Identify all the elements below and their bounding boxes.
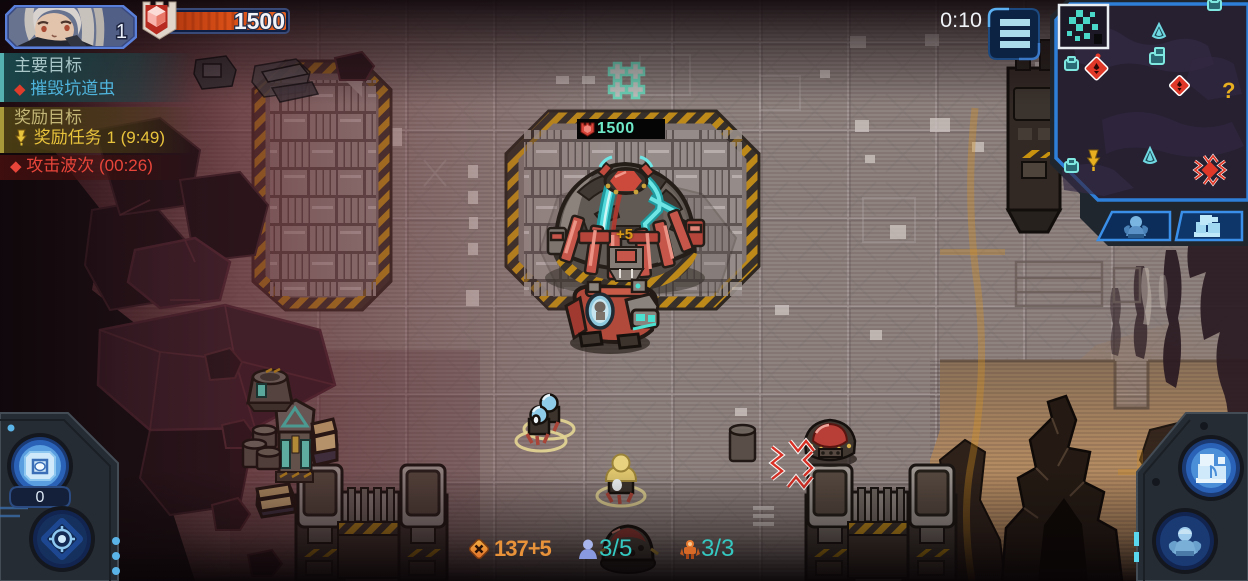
svg-text:?: ? — [1222, 78, 1235, 103]
svg-text:0: 0 — [36, 489, 45, 506]
svg-text:1: 1 — [116, 21, 127, 43]
svg-text:1500: 1500 — [234, 8, 285, 34]
